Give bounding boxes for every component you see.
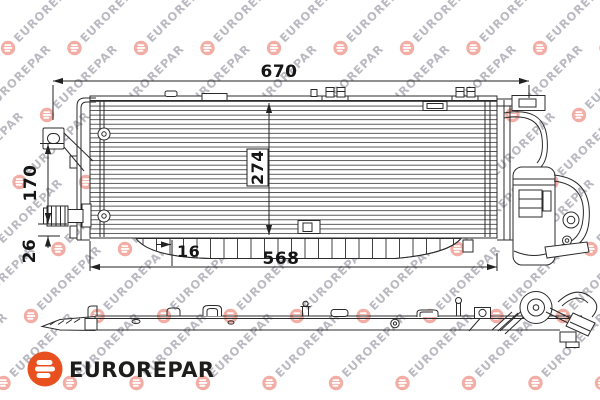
dimension-26-label: 26 — [20, 239, 40, 264]
technical-drawing-svg: EUROREPAR — [0, 0, 600, 400]
dimension-170-label: 170 — [21, 165, 41, 202]
condenser-core — [90, 96, 497, 238]
dimension-670-label: 670 — [261, 62, 298, 82]
dimension-274-label: 274 — [248, 150, 267, 185]
bottom-bracket — [298, 221, 320, 234]
eurorepar-logo: EUROREPAR — [28, 352, 215, 387]
dimension-16-label: 16 — [177, 242, 200, 261]
watermark-instance — [533, 0, 600, 55]
eurorepar-logo-text: EUROREPAR — [69, 358, 214, 382]
product-technical-drawing: EUROREPAR — [0, 0, 600, 400]
dimension-568-label: 568 — [263, 249, 300, 269]
